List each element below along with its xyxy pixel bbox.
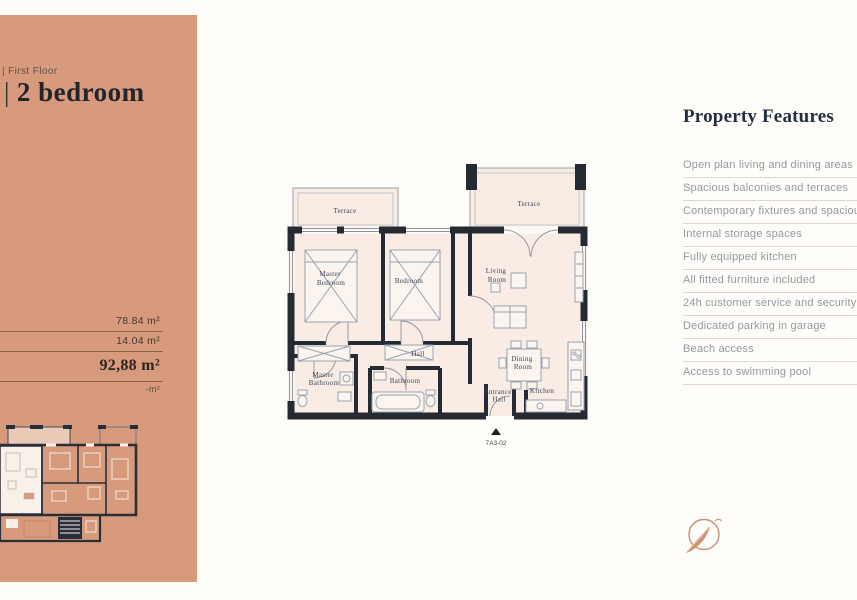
- floor-locator-plan: [0, 419, 140, 551]
- sidebar-panel: | First Floor |2 bedroom 78.84 m² 14.04 …: [0, 15, 197, 582]
- page-title-text: 2 bedroom: [17, 77, 145, 107]
- title-divider-bar: |: [4, 77, 10, 107]
- features-heading: Property Features: [683, 106, 857, 128]
- master-bedroom-label: Master Bedroom: [317, 270, 345, 287]
- feature-item: Beach access: [683, 339, 857, 362]
- floor-label: | First Floor: [2, 66, 58, 77]
- dining-room-label: Dining Room: [511, 355, 534, 371]
- area-extra: -m²: [0, 382, 163, 398]
- feature-item: Dedicated parking in garage: [683, 316, 857, 339]
- area-interior: 78.84 m²: [0, 312, 163, 332]
- area-total: 92,88 m²: [0, 352, 163, 382]
- feature-item: Fully equipped kitchen: [683, 247, 857, 270]
- bedroom-label: Bedroom: [395, 277, 423, 285]
- feature-item: All fitted furniture included: [683, 270, 857, 293]
- apartment-floor-plan: Terrace Terrace Master Bedroom Bedroom L…: [278, 146, 628, 450]
- feature-item: Spacious balconies and terraces: [683, 178, 857, 201]
- bathroom-label: Bathroom: [390, 377, 421, 385]
- area-summary: 78.84 m² 14.04 m² 92,88 m² -m²: [0, 312, 163, 398]
- kitchen-label: Kitchen: [530, 387, 554, 395]
- brochure-page: | First Floor |2 bedroom 78.84 m² 14.04 …: [0, 0, 857, 600]
- hall-label: Hall: [411, 350, 424, 358]
- property-features-panel: Property Features Open plan living and d…: [683, 106, 857, 385]
- feature-item: Contemporary fixtures and spacious layou…: [683, 201, 857, 224]
- page-title: |2 bedroom: [4, 77, 145, 108]
- terrace-left-label: Terrace: [334, 207, 357, 215]
- feature-item: Access to swimming pool: [683, 362, 857, 385]
- feature-item: Open plan living and dining areas: [683, 155, 857, 178]
- brand-logo-icon: [681, 513, 727, 559]
- entrance-arrow-icon: [491, 428, 501, 435]
- living-room-label: Living Room: [486, 267, 509, 284]
- feature-item: Internal storage spaces: [683, 224, 857, 247]
- terrace-right-shape: [466, 164, 586, 230]
- feature-item: 24h customer service and security: [683, 293, 857, 316]
- area-terrace: 14.04 m²: [0, 332, 163, 352]
- features-list: Open plan living and dining areas Spacio…: [683, 155, 857, 385]
- terrace-right-label: Terrace: [518, 200, 541, 208]
- unit-code: 7A3-02: [486, 440, 507, 447]
- master-bathroom-label: Master Bathroom: [309, 371, 340, 387]
